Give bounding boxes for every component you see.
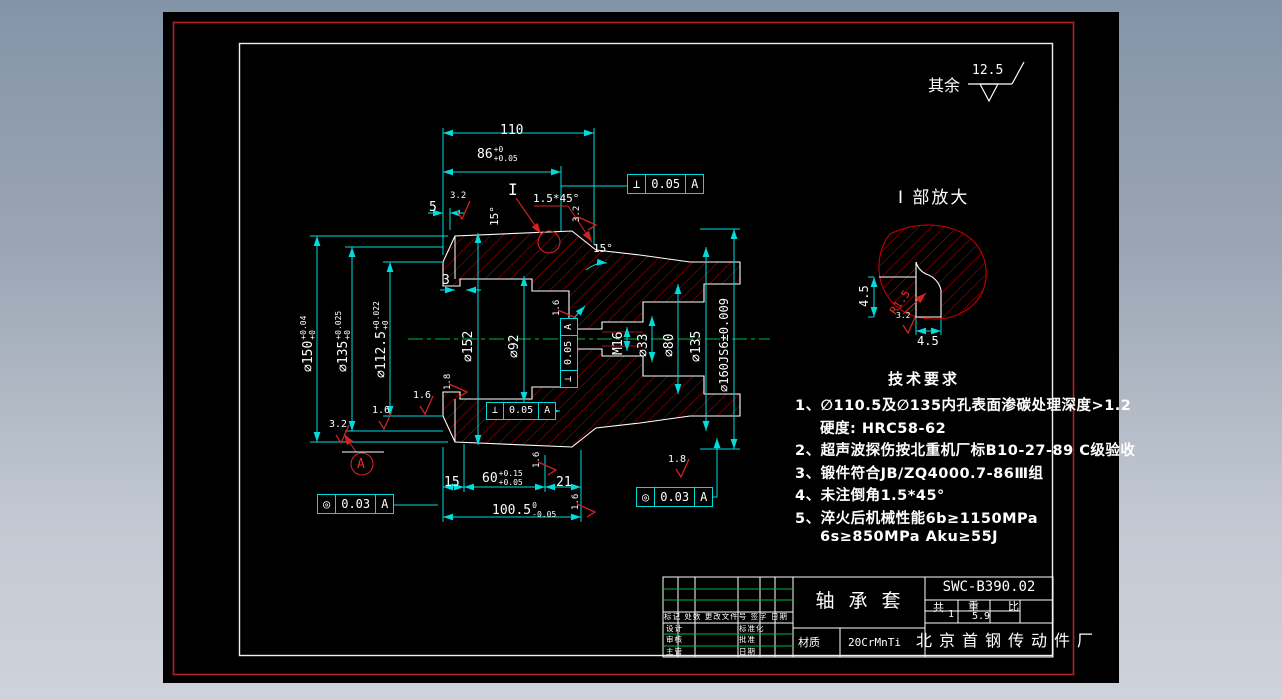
rev-row1-right: 标准化 bbox=[739, 625, 765, 633]
dim-chamfer: 1.5*45° bbox=[533, 193, 579, 204]
part-name: 轴 承 套 bbox=[795, 592, 925, 611]
dim-3: 3 bbox=[442, 274, 450, 287]
dim-100-5: 100.5 0-0.05 bbox=[492, 502, 556, 520]
rev-row3-left: 主管 bbox=[666, 648, 683, 656]
detail-dim-horizontal: 4.5 bbox=[917, 335, 939, 347]
tech-line-7: 6s≥850MPa Aku≥55J bbox=[820, 529, 998, 545]
roughness-r5: 1.6 bbox=[413, 391, 431, 401]
tech-line-2: 硬度: HRC58-62 bbox=[820, 417, 946, 438]
tech-line-4: 3、锻件符合JB/ZQ4000.7-86Ⅲ组 bbox=[795, 462, 1044, 483]
fcf-bl-symbol: ◎ bbox=[318, 495, 335, 513]
roughness-r10: 1.8 bbox=[668, 455, 686, 465]
fcf-top-value: 0.05 bbox=[645, 175, 685, 193]
fcf-perpendicularity-mid-bottom: ⊥ 0.05 A bbox=[486, 402, 556, 420]
fcf-midb-datum: A bbox=[538, 403, 555, 419]
general-note-prefix: 其余 bbox=[928, 78, 960, 94]
dim-86: 86 +0+0.05 bbox=[477, 146, 518, 164]
dim-60-sub: +0.05 bbox=[499, 479, 523, 488]
dim-86-sub: +0.05 bbox=[494, 155, 518, 164]
roughness-r9: 1.6 bbox=[572, 494, 581, 510]
dim-angle-left: 15° bbox=[489, 206, 500, 226]
fcf-br-datum: A bbox=[694, 488, 712, 506]
weight-value: 5.9 bbox=[972, 612, 990, 622]
tech-line-5: 4、未注倒角1.5*45° bbox=[795, 484, 945, 505]
roughness-r1: 3.2 bbox=[450, 192, 466, 201]
dim-135-left-sub: +0 bbox=[344, 311, 353, 340]
tech-requirements-title: 技术要求 bbox=[888, 368, 960, 389]
fcf-br-symbol: ◎ bbox=[637, 488, 654, 506]
fcf-midb-symbol: ⊥ bbox=[487, 403, 503, 419]
dim-5: 5 bbox=[429, 201, 437, 214]
rev-row1-left: 设计 bbox=[666, 625, 683, 633]
material-value: 20CrMnTi bbox=[848, 637, 901, 648]
fcf-perpendicularity-top: ⊥ 0.05 A bbox=[627, 174, 704, 194]
dim-112-5: ∅112.5 +0.022+0 bbox=[373, 301, 391, 378]
rev-row2-right: 批准 bbox=[739, 636, 756, 644]
dim-100-5-sub: -0.05 bbox=[532, 511, 556, 520]
dim-21: 21 bbox=[556, 476, 572, 489]
fcf-concentricity-bottom-right: ◎ 0.03 A bbox=[636, 487, 713, 507]
tech-line-1: 1、∅110.5及∅135内孔表面渗碳处理深度>1.2 bbox=[795, 394, 1131, 415]
tech-line-3: 2、超声波探伤按北重机厂标B10-27-89 C级验收 bbox=[795, 439, 1135, 460]
dim-110: 110 bbox=[500, 124, 523, 137]
dim-135-right: ∅135 bbox=[690, 331, 703, 362]
dim-150-sub: +0 bbox=[309, 316, 318, 340]
dim-92: ∅92 bbox=[508, 335, 521, 358]
fcf-bl-value: 0.03 bbox=[335, 495, 375, 513]
dim-angle-right: 15° bbox=[593, 243, 613, 254]
fcf-midv-datum: A bbox=[561, 319, 577, 336]
general-note-roughness: 12.5 bbox=[972, 64, 1003, 77]
roughness-r4: 1.6 bbox=[372, 406, 390, 416]
roughness-r8: 1.6 bbox=[533, 452, 542, 468]
dim-150-main: ∅150 bbox=[302, 341, 315, 372]
revision-header: 标记 处数 更改文件号 签字 日期 bbox=[664, 613, 792, 621]
rev-row3-right: 日期 bbox=[739, 648, 756, 656]
fcf-bl-datum: A bbox=[375, 495, 393, 513]
fcf-perpendicularity-mid-vertical: ⊥ 0.05 A bbox=[560, 318, 578, 388]
dim-152: ∅152 bbox=[462, 331, 475, 362]
scale-label: 比 bbox=[1008, 601, 1019, 612]
datum-a-label: A bbox=[357, 458, 365, 471]
dim-60-main: 60 bbox=[482, 472, 498, 485]
dim-60: 60 +0.15+0.05 bbox=[482, 470, 523, 488]
detail-marker: I bbox=[508, 182, 518, 198]
dim-150: ∅150 +0.04+0 bbox=[300, 316, 318, 372]
dim-135-left-main: ∅135 bbox=[337, 341, 350, 372]
fcf-concentricity-bottom-left: ◎ 0.03 A bbox=[317, 494, 394, 514]
dim-15: 15 bbox=[444, 476, 460, 489]
dim-112-5-sub: +0 bbox=[382, 301, 391, 330]
dim-112-5-main: ∅112.5 bbox=[375, 331, 388, 378]
cad-viewer-window: 其余 12.5 110 86 +0+0.05 5 15° I 1.5*45° 1… bbox=[0, 0, 1282, 699]
qty-value: 1 bbox=[948, 610, 954, 620]
fcf-midb-value: 0.05 bbox=[503, 403, 538, 419]
dim-33: ∅33 bbox=[637, 334, 650, 357]
fcf-midv-value: 0.05 bbox=[561, 336, 577, 371]
roughness-r2: 3.2 bbox=[573, 206, 582, 222]
detail-view-title: I 部放大 bbox=[898, 190, 969, 207]
rev-row2-left: 审核 bbox=[666, 636, 683, 644]
detail-dim-vertical: 4.5 bbox=[858, 285, 870, 307]
dim-m16: M16 bbox=[612, 332, 625, 355]
qty-label: 共 bbox=[933, 602, 944, 613]
fcf-br-value: 0.03 bbox=[654, 488, 694, 506]
dim-100-5-main: 100.5 bbox=[492, 504, 531, 517]
fcf-midv-symbol: ⊥ bbox=[561, 371, 577, 387]
drawing-number: SWC-B390.02 bbox=[928, 580, 1050, 594]
roughness-r3: 3.2 bbox=[329, 420, 347, 430]
roughness-r6: 1.8 bbox=[444, 374, 453, 390]
tech-line-6: 5、淬火后机械性能6b≥1150MPa bbox=[795, 507, 1038, 528]
dim-80: ∅80 bbox=[663, 334, 676, 357]
dim-160: ∅160JS6±0.009 bbox=[718, 298, 730, 392]
fcf-top-symbol: ⊥ bbox=[628, 175, 645, 193]
roughness-r7: 1.6 bbox=[553, 300, 562, 316]
company-name: 北京首钢传动件厂 bbox=[916, 633, 1100, 649]
dim-86-main: 86 bbox=[477, 148, 493, 161]
fcf-top-datum: A bbox=[685, 175, 703, 193]
material-label: 材质 bbox=[798, 637, 820, 648]
dim-135-left: ∅135 +0.025+0 bbox=[335, 311, 353, 372]
